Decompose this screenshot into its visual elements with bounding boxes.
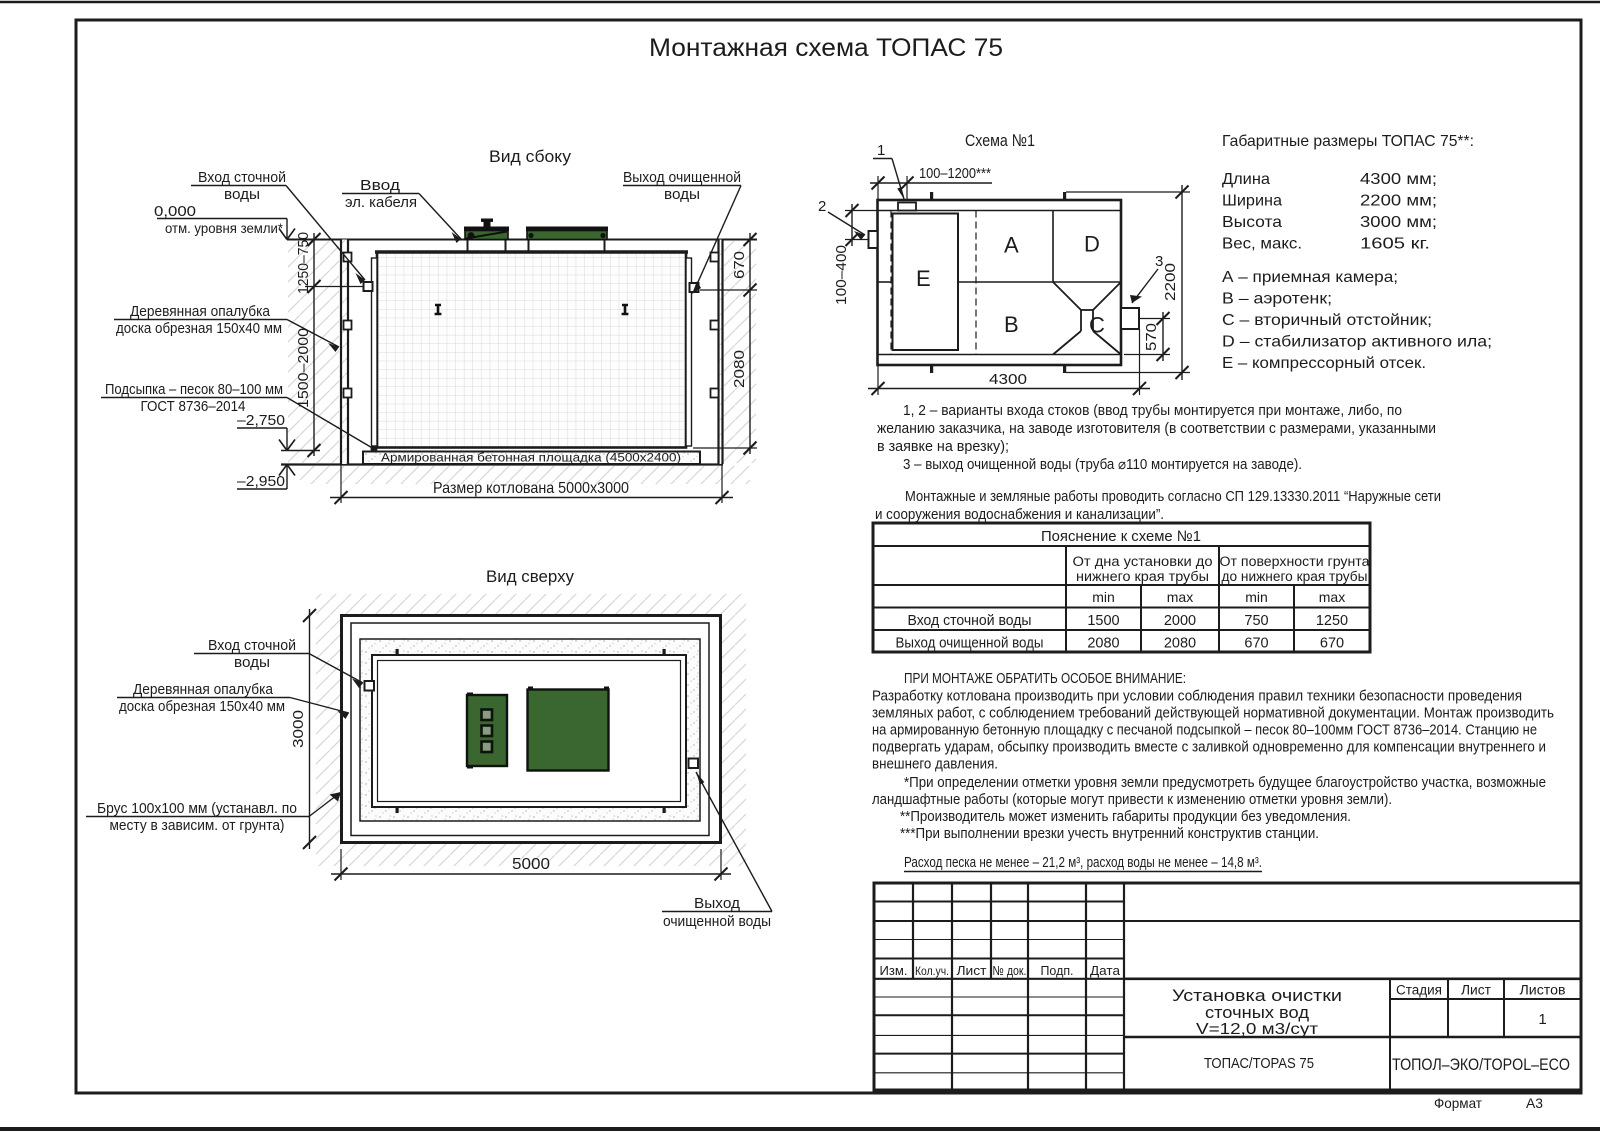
- svg-text:1, 2 – варианты входа стоков: 1, 2 – варианты входа стоков (ввод трубы…: [903, 403, 1402, 419]
- svg-text:Листов: Листов: [1520, 983, 1566, 998]
- svg-text:3 – выход очищенной воды (труб: 3 – выход очищенной воды (труба ⌀110 мон…: [903, 457, 1302, 473]
- svg-text:От поверхности грунта: От поверхности грунта: [1220, 554, 1371, 569]
- svg-text:max: max: [1167, 589, 1193, 605]
- svg-text:А3: А3: [1526, 1095, 1543, 1111]
- svg-text:Лист: Лист: [1461, 983, 1491, 998]
- svg-text:Е – компрессорный отсек.: Е – компрессорный отсек.: [1222, 355, 1426, 372]
- svg-text:воды: воды: [234, 654, 270, 671]
- svg-text:D: D: [1084, 232, 1100, 257]
- svg-text:V=12,0 м3/сут: V=12,0 м3/сут: [1196, 1021, 1319, 1038]
- svg-text:и сооружения водоснабжения и к: и сооружения водоснабжения и канализации…: [875, 507, 1164, 523]
- svg-text:670: 670: [1320, 636, 1344, 652]
- svg-text:3000 мм;: 3000 мм;: [1360, 214, 1437, 231]
- svg-text:Деревянная опалубка: Деревянная опалубка: [130, 303, 271, 320]
- svg-text:2: 2: [818, 198, 826, 215]
- svg-text:внешнего давления.: внешнего давления.: [872, 757, 998, 773]
- svg-text:750: 750: [1244, 613, 1268, 629]
- svg-text:сточных вод: сточных вод: [1205, 1003, 1309, 1022]
- svg-text:min: min: [1245, 589, 1268, 605]
- svg-text:Формат: Формат: [1434, 1095, 1483, 1111]
- svg-text:1500–2000: 1500–2000: [296, 328, 312, 408]
- svg-text:Вид сверху: Вид сверху: [486, 567, 574, 586]
- svg-text:С – вторичный отстойник;: С – вторичный отстойник;: [1222, 312, 1432, 329]
- svg-text:отм. уровня земли*: отм. уровня земли*: [165, 220, 284, 236]
- svg-text:B: B: [1004, 312, 1019, 337]
- svg-text:A: A: [1004, 233, 1019, 258]
- svg-text:2000: 2000: [1164, 613, 1196, 629]
- svg-text:эл. кабеля: эл. кабеля: [345, 194, 417, 211]
- svg-text:Монтажные и земляные работы пр: Монтажные и земляные работы проводить со…: [905, 489, 1441, 505]
- svg-text:Габаритные размеры ТОПАС 75**:: Габаритные размеры ТОПАС 75**:: [1222, 133, 1474, 150]
- svg-text:Дата: Дата: [1090, 963, 1121, 978]
- svg-text:Выход очищенной: Выход очищенной: [623, 169, 741, 186]
- svg-text:Высота: Высота: [1222, 214, 1282, 231]
- svg-text:3000: 3000: [291, 710, 307, 748]
- svg-text:Выход очищенной воды: Выход очищенной воды: [896, 636, 1044, 652]
- svg-text:1: 1: [1538, 1011, 1546, 1028]
- svg-text:1605 кг.: 1605 кг.: [1360, 236, 1430, 253]
- svg-text:2200 мм;: 2200 мм;: [1360, 193, 1437, 210]
- svg-text:4300 мм;: 4300 мм;: [1360, 171, 1437, 188]
- svg-text:на армированную бетонную площа: на армированную бетонную площадку с песч…: [872, 723, 1537, 739]
- svg-text:месту в зависим. от грунта): месту в зависим. от грунта): [110, 817, 285, 834]
- svg-text:Стадия: Стадия: [1396, 983, 1442, 998]
- svg-text:Изм.: Изм.: [880, 963, 908, 978]
- svg-text:желанию заказчика, на заводе и: желанию заказчика, на заводе изготовител…: [877, 421, 1436, 437]
- svg-text:А – приемная камера;: А – приемная камера;: [1222, 269, 1398, 286]
- svg-text:От дна установки до: От дна установки до: [1073, 554, 1213, 569]
- svg-text:–2,750: –2,750: [237, 412, 285, 429]
- svg-text:E: E: [916, 266, 931, 291]
- svg-text:№ док.: № док.: [993, 963, 1027, 978]
- svg-text:воды: воды: [224, 186, 260, 203]
- svg-text:min: min: [1092, 589, 1115, 605]
- svg-text:нижнего края трубы: нижнего края трубы: [1076, 569, 1209, 584]
- svg-text:воды: воды: [664, 186, 700, 203]
- svg-text:1: 1: [877, 142, 885, 159]
- svg-text:Выход: Выход: [694, 895, 740, 912]
- svg-text:100–400: 100–400: [834, 245, 850, 305]
- svg-text:Схема №1: Схема №1: [965, 131, 1035, 150]
- svg-text:**Производитель может изменить: **Производитель может изменить габариты …: [900, 809, 1351, 825]
- svg-text:2080: 2080: [732, 350, 748, 388]
- svg-text:доска обрезная 150х40 мм: доска обрезная 150х40 мм: [119, 698, 285, 715]
- svg-text:Размер котлована 5000х3000: Размер котлована 5000х3000: [433, 480, 629, 497]
- svg-text:Ввод: Ввод: [360, 177, 400, 194]
- svg-text:Ширина: Ширина: [1222, 193, 1282, 210]
- svg-text:Монтажная схема ТОПАС 75: Монтажная схема ТОПАС 75: [649, 34, 1003, 62]
- svg-text:Длина: Длина: [1222, 171, 1270, 188]
- svg-text:ПРИ МОНТАЖЕ ОБРАТИТЬ ОСОБОЕ ВН: ПРИ МОНТАЖЕ ОБРАТИТЬ ОСОБОЕ ВНИМАНИЕ:: [904, 671, 1186, 687]
- svg-text:В – аэротенк;: В – аэротенк;: [1222, 291, 1332, 308]
- svg-text:Кол.уч.: Кол.уч.: [915, 966, 949, 978]
- svg-text:1250–750: 1250–750: [296, 232, 312, 294]
- svg-text:очищенной воды: очищенной воды: [663, 913, 771, 930]
- svg-text:подвергать ударам, обсыпку про: подвергать ударам, обсыпку производить в…: [872, 740, 1546, 756]
- svg-text:Разработку котлована производи: Разработку котлована производить при усл…: [872, 689, 1522, 705]
- svg-text:Вход сточной: Вход сточной: [198, 169, 286, 186]
- svg-text:Лист: Лист: [957, 963, 987, 978]
- svg-text:670: 670: [732, 251, 748, 279]
- svg-text:Вход сточной воды: Вход сточной воды: [908, 613, 1032, 629]
- svg-text:2080: 2080: [1164, 636, 1196, 652]
- svg-text:Армированная бетонная площадка: Армированная бетонная площадка (4500х240…: [381, 453, 681, 465]
- svg-text:–2,950: –2,950: [237, 473, 285, 490]
- svg-text:*При определении отметки уровн: *При определении отметки уровня земли пр…: [904, 775, 1546, 791]
- svg-text:Вход сточной: Вход сточной: [208, 637, 296, 654]
- svg-text:Деревянная опалубка: Деревянная опалубка: [133, 681, 274, 698]
- svg-text:1250: 1250: [1316, 613, 1348, 629]
- svg-text:Расход песка не менее – 21,2 м: Расход песка не менее – 21,2 м³, расход …: [904, 855, 1262, 871]
- svg-text:доска обрезная 150х40 мм: доска обрезная 150х40 мм: [116, 320, 282, 337]
- svg-text:2200: 2200: [1163, 263, 1179, 301]
- svg-text:5000: 5000: [512, 856, 550, 873]
- svg-text:ландшафтные работы (которые мо: ландшафтные работы (которые могут привес…: [872, 792, 1392, 808]
- svg-text:2080: 2080: [1087, 636, 1119, 652]
- svg-text:Подсыпка – песок 80–100 мм: Подсыпка – песок 80–100 мм: [105, 381, 283, 398]
- svg-text:до нижнего края трубы: до нижнего края трубы: [1222, 569, 1368, 584]
- svg-text:Пояснение к схеме №1: Пояснение к схеме №1: [1041, 528, 1201, 545]
- svg-text:1500: 1500: [1087, 613, 1119, 629]
- svg-text:Вид сбоку: Вид сбоку: [489, 147, 572, 166]
- svg-text:max: max: [1319, 589, 1345, 605]
- svg-text:Брус 100х100 мм (устанавл. по: Брус 100х100 мм (устанавл. по: [97, 800, 297, 817]
- svg-text:ГОСТ 8736–2014: ГОСТ 8736–2014: [141, 398, 246, 415]
- svg-text:0,000: 0,000: [154, 203, 196, 220]
- svg-text:670: 670: [1244, 636, 1268, 652]
- svg-text:***При выполнении врезки учест: ***При выполнении врезки учесть внутренн…: [900, 826, 1319, 842]
- svg-text:Вес, макс.: Вес, макс.: [1222, 236, 1302, 253]
- svg-text:Подп.: Подп.: [1041, 963, 1074, 978]
- svg-text:ТОПОЛ–ЭКО/TOPOL–ECO: ТОПОЛ–ЭКО/TOPOL–ECO: [1392, 1055, 1570, 1074]
- svg-text:в заявке на врезку);: в заявке на врезку);: [877, 439, 1009, 455]
- svg-text:C: C: [1089, 313, 1105, 338]
- svg-text:D – стабилизатор активного ила: D – стабилизатор активного ила;: [1222, 334, 1492, 351]
- svg-text:земляных работ, с соблюдением: земляных работ, с соблюдением требований…: [872, 706, 1554, 722]
- svg-text:ТОПАС/TOPAS 75: ТОПАС/TOPAS 75: [1204, 1056, 1314, 1072]
- svg-text:570: 570: [1144, 323, 1160, 351]
- svg-text:4300: 4300: [989, 371, 1027, 388]
- svg-text:100–1200***: 100–1200***: [919, 165, 991, 182]
